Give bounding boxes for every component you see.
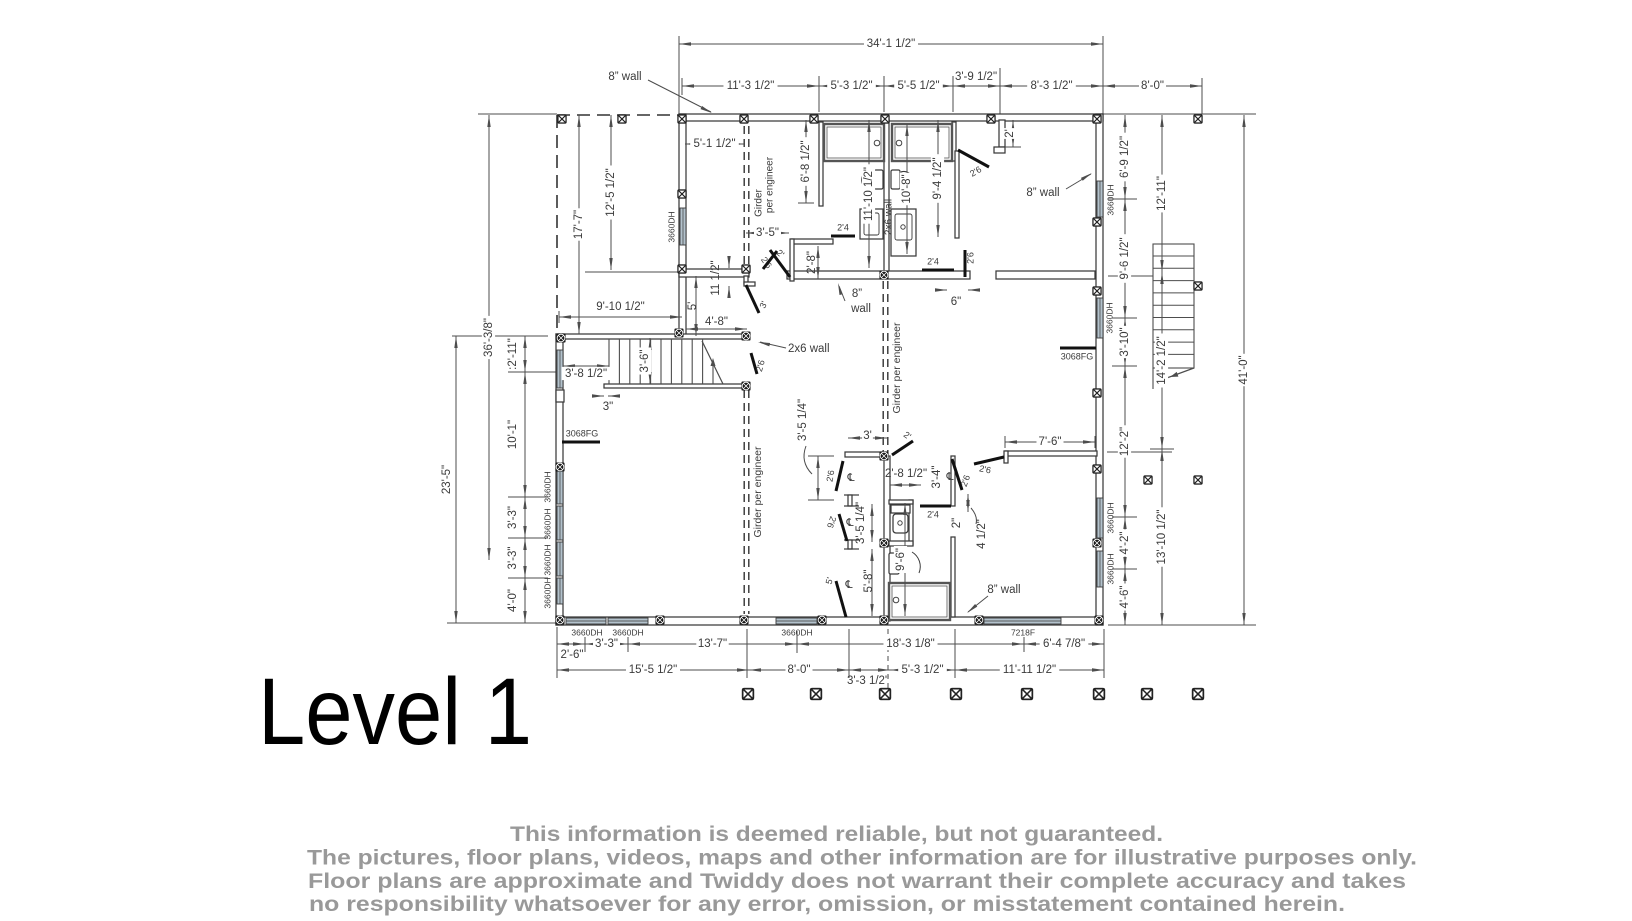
svg-text:2x6 wall: 2x6 wall <box>788 343 830 355</box>
svg-text:3": 3" <box>603 401 613 413</box>
svg-text:3'-9 1/2": 3'-9 1/2" <box>955 71 997 83</box>
svg-text:Girder per engineer: Girder per engineer <box>752 446 764 538</box>
svg-text:5'-5 1/2": 5'-5 1/2" <box>897 80 939 92</box>
svg-text:8'-0": 8'-0" <box>788 664 811 676</box>
svg-text:8” wall: 8” wall <box>1026 187 1059 199</box>
svg-text:3'-5 1/4": 3'-5 1/4" <box>797 399 809 441</box>
svg-text:4 1/2": 4 1/2" <box>976 519 988 549</box>
svg-text:The pictures, floor plans, vid: The pictures, floor plans, videos, maps … <box>307 846 1417 870</box>
svg-text:12'-2": 12'-2" <box>1119 427 1131 456</box>
svg-text:9'-4 1/2": 9'-4 1/2" <box>932 157 944 199</box>
svg-text:36'-3/8": 36'-3/8" <box>483 318 495 357</box>
svg-text:3660DH: 3660DH <box>1104 302 1114 333</box>
svg-text:℄: ℄ <box>846 472 854 484</box>
svg-text:5'-3 1/2": 5'-3 1/2" <box>901 664 943 676</box>
svg-text:no responsibility whatsoever f: no responsibility whatsoever for any err… <box>309 892 1345 916</box>
svg-text:11'-3 1/2": 11'-3 1/2" <box>727 80 775 92</box>
svg-text:6": 6" <box>951 296 961 308</box>
svg-text:3068FG: 3068FG <box>1061 351 1094 361</box>
svg-text:17'-7": 17'-7" <box>573 210 585 239</box>
svg-text:8”: 8” <box>852 288 862 300</box>
svg-text:11 1/2": 11 1/2" <box>710 260 722 295</box>
svg-text:6'-9 1/2": 6'-9 1/2" <box>1119 136 1131 178</box>
svg-text:wall: wall <box>850 303 871 315</box>
svg-text:4'-6": 4'-6" <box>1119 586 1131 609</box>
svg-text:3'-8 1/2": 3'-8 1/2" <box>565 368 607 380</box>
svg-text:3660DH: 3660DH <box>542 577 552 608</box>
svg-text:2": 2" <box>951 518 963 528</box>
svg-text:3660DH: 3660DH <box>781 627 812 637</box>
svg-text:2': 2' <box>1004 129 1016 138</box>
svg-text:15'-5 1/2": 15'-5 1/2" <box>629 664 677 676</box>
svg-text:3660DH: 3660DH <box>542 544 552 575</box>
svg-text:3'-10": 3'-10" <box>1119 327 1131 356</box>
svg-text:41'-0": 41'-0" <box>1238 355 1250 384</box>
svg-text:2'4: 2'4 <box>927 256 939 266</box>
svg-text:3'-3": 3'-3" <box>507 506 519 529</box>
svg-text:13'-7": 13'-7" <box>698 638 727 650</box>
svg-text:3660DH: 3660DH <box>612 627 643 637</box>
svg-text:11'-11 1/2": 11'-11 1/2" <box>1003 664 1056 676</box>
svg-text:per engineer: per engineer <box>765 156 776 213</box>
svg-text:9'-6": 9'-6" <box>895 548 907 571</box>
svg-text:Level 1: Level 1 <box>258 659 532 765</box>
svg-text:3660DH: 3660DH <box>542 508 552 539</box>
svg-text:2'-8": 2'-8" <box>806 251 818 274</box>
svg-text:3'-5": 3'-5" <box>756 227 779 239</box>
svg-text:12'-11": 12'-11" <box>1156 176 1168 211</box>
svg-text:6'-8 1/2": 6'-8 1/2" <box>800 140 812 182</box>
svg-text:9'-6 1/2": 9'-6 1/2" <box>1119 237 1131 279</box>
svg-text:3660DH: 3660DH <box>1105 184 1115 215</box>
svg-text:3660DH: 3660DH <box>666 211 676 242</box>
svg-text:3068FG: 3068FG <box>566 428 599 438</box>
svg-text:8” wall: 8” wall <box>608 71 641 83</box>
svg-text:2'4: 2'4 <box>927 509 939 519</box>
svg-text:12'-5 1/2": 12'-5 1/2" <box>605 168 617 216</box>
svg-text:2'-6": 2'-6" <box>561 649 584 661</box>
svg-text:3'-3": 3'-3" <box>507 547 519 570</box>
svg-text:23'-5": 23'-5" <box>441 465 453 494</box>
svg-text:3'-4": 3'-4" <box>931 466 943 489</box>
svg-text:Girder: Girder <box>754 188 765 216</box>
svg-text:4'-2": 4'-2" <box>1119 532 1131 555</box>
svg-text:3660DH: 3660DH <box>571 627 602 637</box>
svg-text:4'-0": 4'-0" <box>507 589 519 612</box>
svg-text:7218F: 7218F <box>1011 627 1035 637</box>
svg-text:10'-8": 10'-8" <box>901 174 913 203</box>
svg-text:8'-0": 8'-0" <box>1141 80 1164 92</box>
svg-text:13'-10 1/2": 13'-10 1/2" <box>1156 510 1168 565</box>
svg-text:3'-3": 3'-3" <box>595 638 618 650</box>
svg-text:2'4: 2'4 <box>837 222 849 232</box>
svg-text:℄: ℄ <box>945 471 953 483</box>
svg-text::2'-11": :2'-11" <box>507 338 519 370</box>
svg-text:3': 3' <box>863 430 872 442</box>
svg-text:11'-10 1/2": 11'-10 1/2" <box>863 167 875 221</box>
svg-text:8'-3 1/2": 8'-3 1/2" <box>1030 80 1072 92</box>
svg-text:Floor plans are approximate an: Floor plans are approximate and Twiddy d… <box>308 869 1406 893</box>
svg-text:4'-8": 4'-8" <box>705 316 728 328</box>
svg-text:2'-8 1/2": 2'-8 1/2" <box>885 468 927 480</box>
svg-text:10'-1": 10'-1" <box>507 420 519 449</box>
svg-text:5'-1 1/2": 5'-1 1/2" <box>693 138 735 150</box>
svg-text:℄: ℄ <box>845 517 853 529</box>
svg-text:2'6: 2'6 <box>824 469 836 482</box>
svg-text:8” wall: 8” wall <box>987 584 1020 596</box>
svg-text:18'-3 1/8": 18'-3 1/8" <box>886 638 934 650</box>
svg-text:3660DH: 3660DH <box>1105 553 1115 584</box>
svg-text:3'-5 1/4": 3'-5 1/4" <box>855 502 867 544</box>
svg-text:Girder per engineer: Girder per engineer <box>891 322 903 414</box>
svg-text:14'-2 1/2": 14'-2 1/2" <box>1156 336 1168 384</box>
svg-text:3'-6": 3'-6" <box>639 350 651 373</box>
svg-text:3'-3 1/2": 3'-3 1/2" <box>847 675 889 687</box>
svg-text:5'-8": 5'-8" <box>863 570 875 593</box>
svg-text:34'-1 1/2": 34'-1 1/2" <box>867 38 915 50</box>
svg-text:3660DH: 3660DH <box>542 471 552 502</box>
svg-text:6'-4 7/8": 6'-4 7/8" <box>1043 638 1085 650</box>
svg-text:This information is deemed rel: This information is deemed reliable, but… <box>510 822 1163 846</box>
svg-text:2'6: 2'6 <box>965 252 975 264</box>
svg-text:9'-10 1/2": 9'-10 1/2" <box>596 301 644 313</box>
svg-text:7'-6": 7'-6" <box>1039 436 1062 448</box>
svg-text:5': 5' <box>687 302 699 311</box>
svg-text:℄: ℄ <box>844 579 852 591</box>
svg-text:5'-3 1/2": 5'-3 1/2" <box>830 80 872 92</box>
svg-text:2x6 wall: 2x6 wall <box>884 199 895 235</box>
svg-text:3660DH: 3660DH <box>1105 502 1115 533</box>
